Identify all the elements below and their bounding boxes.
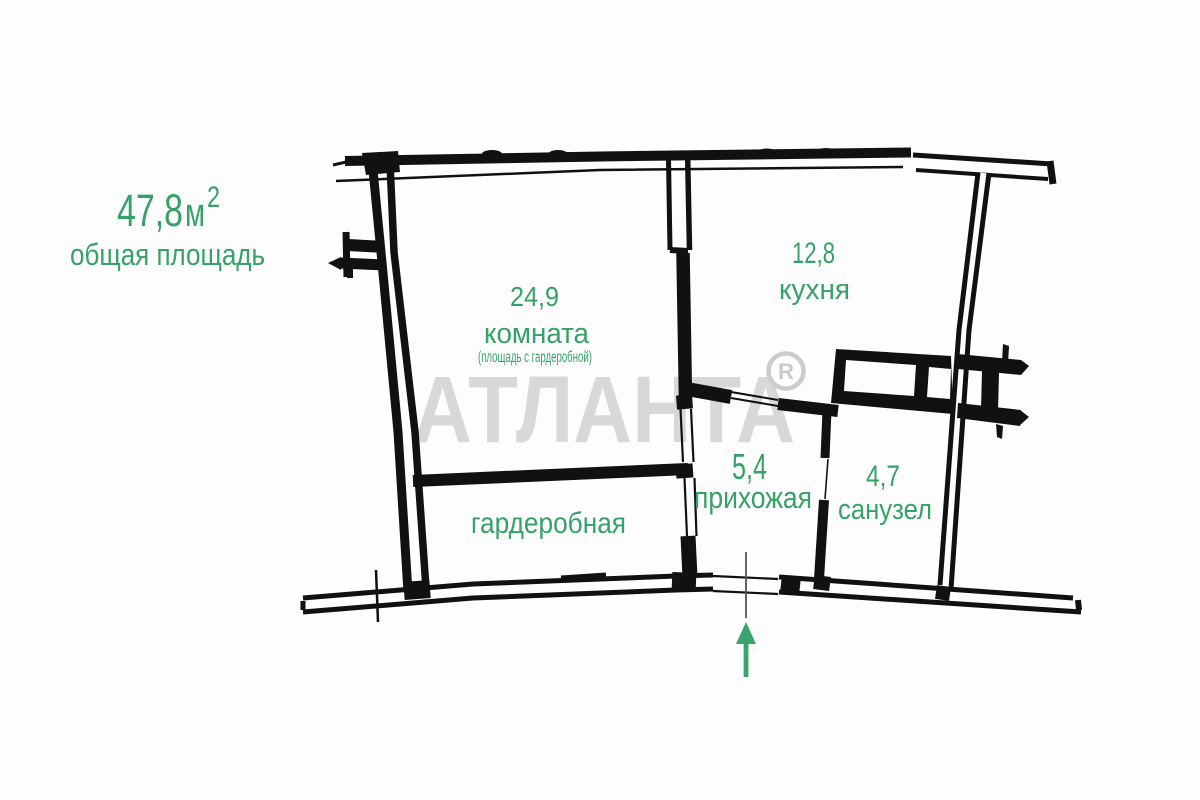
svg-text:24,9: 24,9 — [510, 281, 559, 312]
svg-text:комната: комната — [484, 318, 590, 350]
svg-text:общая площадь: общая площадь — [70, 237, 265, 272]
svg-text:гардеробная: гардеробная — [471, 507, 626, 540]
svg-text:47,8: 47,8 — [117, 185, 183, 236]
svg-text:4,7: 4,7 — [866, 460, 900, 493]
svg-text:12,8: 12,8 — [792, 237, 835, 270]
svg-text:(площадь с гардеробной): (площадь с гардеробной) — [478, 349, 592, 366]
svg-text:м: м — [185, 191, 205, 235]
svg-text:R: R — [778, 359, 794, 384]
svg-text:2: 2 — [207, 181, 220, 214]
svg-text:прихожая: прихожая — [694, 480, 812, 515]
svg-text:санузел: санузел — [838, 494, 932, 526]
svg-text:кухня: кухня — [779, 274, 850, 306]
